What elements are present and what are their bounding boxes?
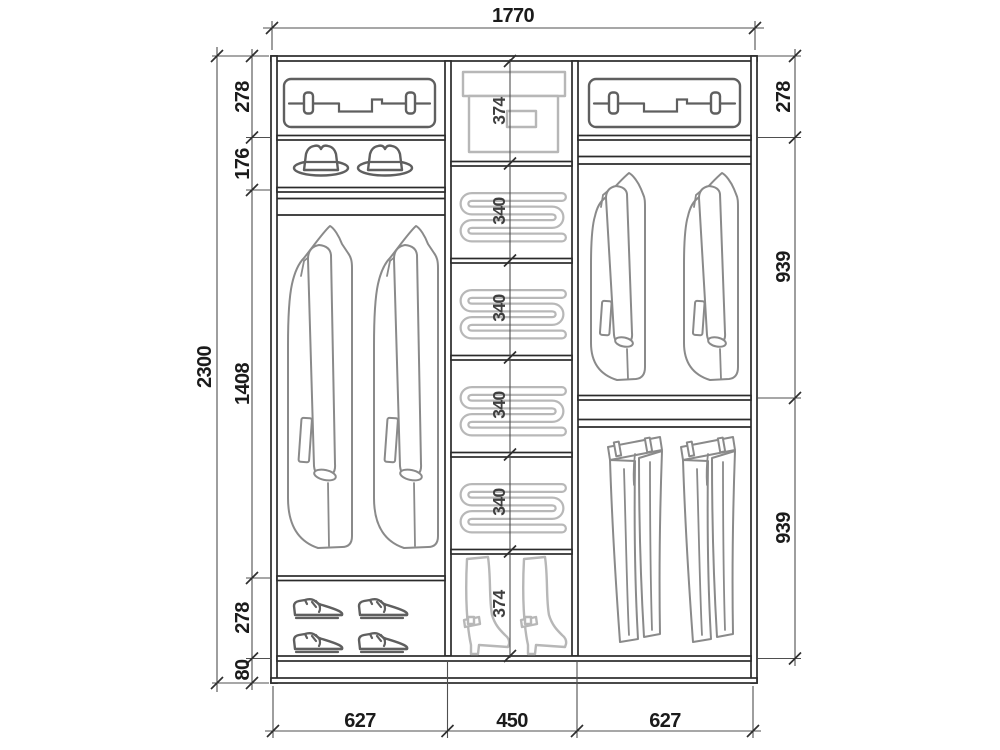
dim-label-trouser-height: 939	[773, 512, 795, 544]
dim-total-width: 1770	[263, 5, 764, 50]
dim-label-suitcase-shelf: 278	[232, 81, 254, 113]
folded-clothes-icon	[465, 294, 563, 335]
dim-label-bottom-right: 627	[649, 710, 681, 732]
left-column-contents	[284, 79, 438, 652]
bottom-shelf-panel	[277, 656, 751, 661]
trousers-icon	[681, 437, 735, 642]
dim-label-shelf-2: 340	[489, 293, 509, 321]
jacket-icon	[591, 173, 645, 380]
dim-label-bottom-middle: 450	[496, 710, 528, 732]
drawing-canvas: 1770 2300 278 176 1408 278 80 278 939 93…	[0, 0, 1000, 750]
dim-label-shelf-4: 340	[489, 487, 509, 515]
hat-icon	[358, 146, 412, 176]
shelf	[277, 576, 445, 581]
folded-clothes-icon	[465, 488, 563, 529]
dim-right-column: 278 939 939	[758, 49, 801, 666]
shoe-icon	[359, 633, 407, 652]
dim-bottom-widths: 627 450 627	[265, 660, 761, 738]
folded-clothes-icon	[465, 391, 563, 432]
suitcase-icon	[284, 79, 435, 127]
shelf	[277, 136, 445, 141]
right-side-panel	[751, 56, 757, 683]
trousers-icon	[608, 437, 662, 642]
dim-label-boot-section: 374	[489, 589, 509, 617]
jacket-icon	[684, 173, 738, 380]
boot-icon	[521, 557, 566, 654]
coat-icon	[374, 226, 438, 548]
dim-label-plinth: 80	[232, 659, 254, 681]
shelf	[578, 136, 751, 141]
dim-label-hanging-height: 1408	[232, 362, 254, 405]
dim-label-hat-shelf: 176	[232, 148, 254, 180]
dim-label-shoe-shelf: 278	[232, 602, 254, 634]
hanger-rod	[578, 420, 751, 428]
suitcase-icon	[589, 79, 740, 127]
shoe-icon	[294, 633, 342, 652]
hanger-rod	[578, 157, 751, 165]
storage-box-icon	[463, 72, 565, 152]
dim-label-top-box: 374	[489, 96, 509, 124]
dim-label-total-width: 1770	[492, 5, 535, 27]
coat-icon	[288, 226, 352, 548]
partition-left	[445, 61, 451, 656]
hat-icon	[294, 146, 348, 176]
shelf	[277, 188, 445, 193]
dim-label-shelf-1: 340	[489, 196, 509, 224]
shoe-icon	[294, 599, 342, 618]
dim-label-shelf-3: 340	[489, 390, 509, 418]
dim-label-total-height: 2300	[194, 345, 216, 388]
shelf	[578, 396, 751, 401]
folded-clothes-icon	[465, 197, 563, 238]
hanger-rod	[277, 199, 445, 216]
dim-label-bottom-left: 627	[344, 710, 376, 732]
dim-label-right-suitcase-shelf: 278	[773, 81, 795, 113]
wardrobe-dimension-drawing: 1770 2300 278 176 1408 278 80 278 939 93…	[0, 0, 1000, 750]
partition-right	[572, 61, 578, 656]
dim-label-jacket-height: 939	[773, 251, 795, 283]
shoe-icon	[359, 599, 407, 618]
plinth-panel	[271, 678, 757, 683]
dim-left-column: 278 176 1408 278 80	[232, 49, 272, 690]
left-side-panel	[271, 56, 277, 683]
